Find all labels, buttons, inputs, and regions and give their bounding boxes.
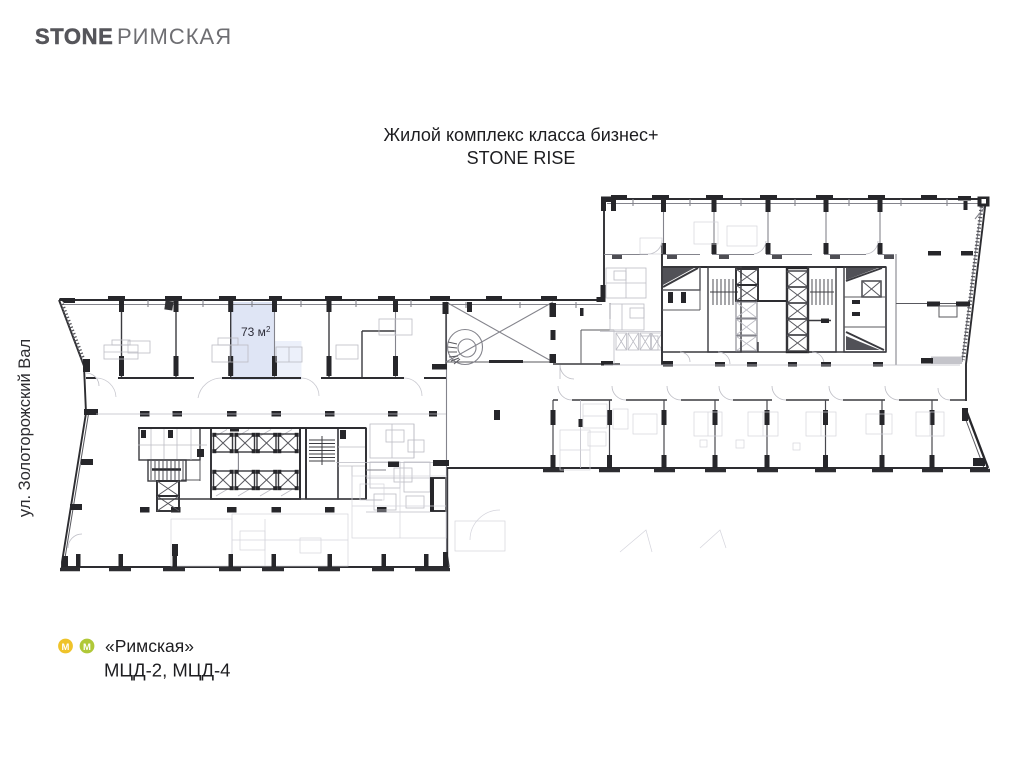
svg-text:М: М [62, 642, 70, 653]
svg-text:Жилой комплекс класса бизнес+: Жилой комплекс класса бизнес+ [384, 125, 659, 145]
svg-text:РИМСКАЯ: РИМСКАЯ [117, 24, 232, 49]
svg-text:«Римская»: «Римская» [105, 636, 194, 656]
svg-text:STONE RISE: STONE RISE [467, 148, 576, 168]
svg-text:ул. Золоторожский Вал: ул. Золоторожский Вал [16, 339, 34, 517]
svg-text:МЦД-2, МЦД-4: МЦД-2, МЦД-4 [104, 660, 230, 681]
svg-text:М: М [83, 642, 91, 653]
svg-text:STONE: STONE [35, 24, 113, 49]
